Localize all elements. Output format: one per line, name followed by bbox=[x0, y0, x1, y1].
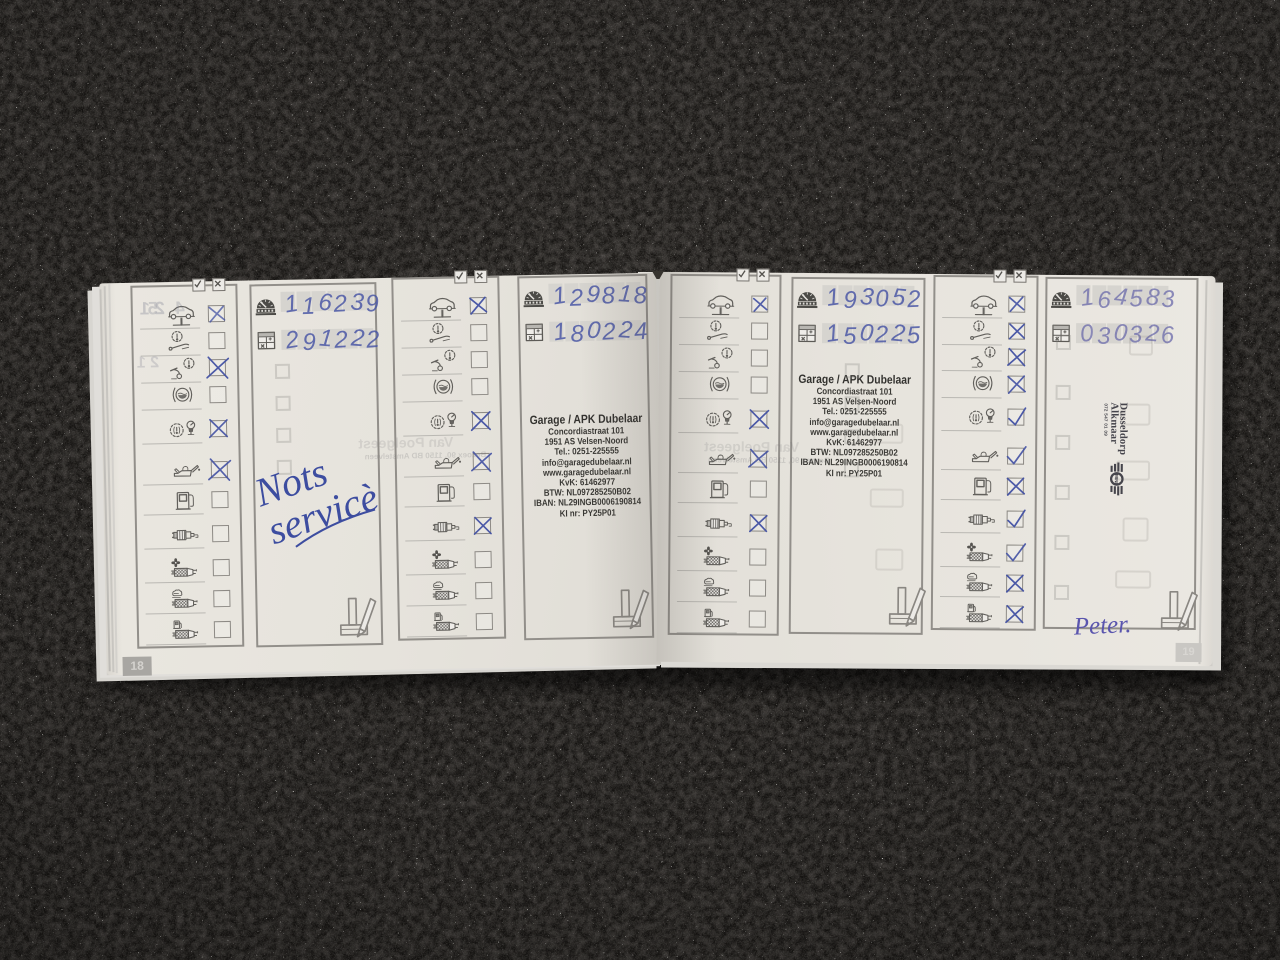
svg-text:MINI: MINI bbox=[1114, 474, 1119, 484]
svg-text:150225: 150225 bbox=[824, 318, 921, 350]
svg-text:030326: 030326 bbox=[1078, 318, 1175, 350]
svg-text:291222: 291222 bbox=[282, 322, 380, 356]
